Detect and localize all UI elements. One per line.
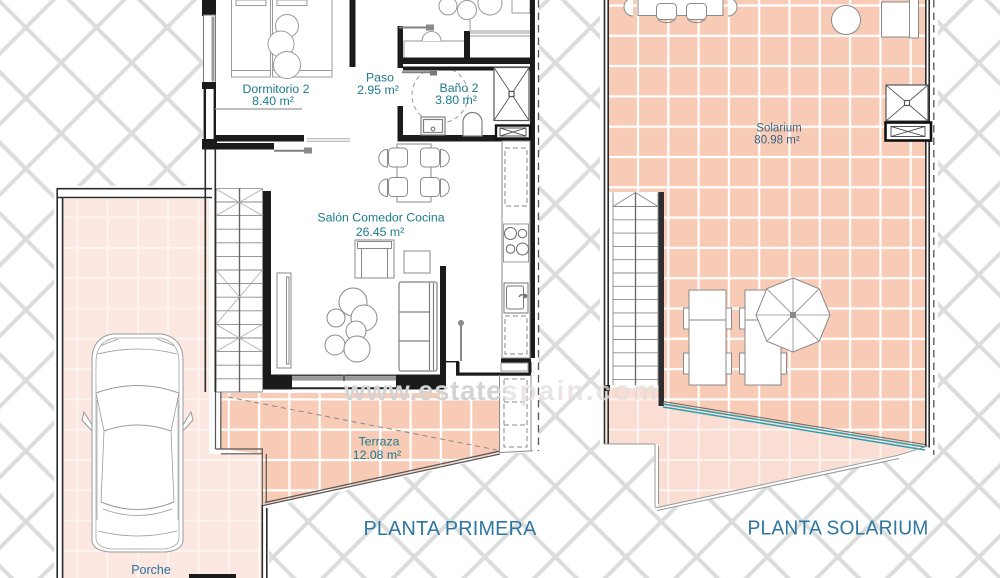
svg-text:2.95 m²: 2.95 m² (357, 83, 399, 97)
svg-text:8.40 m²: 8.40 m² (252, 94, 294, 108)
svg-text:80.98 m²: 80.98 m² (754, 135, 800, 147)
svg-text:3.80 m²: 3.80 m² (435, 93, 477, 107)
svg-text:www.estate: www.estate (343, 375, 502, 406)
svg-text:spain.com: spain.com (502, 375, 660, 406)
svg-text:Solarium: Solarium (756, 123, 801, 135)
svg-text:26.45 m²: 26.45 m² (356, 225, 405, 239)
svg-text:Salón Comedor Cocina: Salón Comedor Cocina (317, 211, 444, 225)
svg-text:Terraza: Terraza (358, 435, 399, 449)
svg-text:PLANTA PRIMERA: PLANTA PRIMERA (364, 518, 537, 540)
svg-text:Porche: Porche (131, 563, 171, 577)
svg-text:PLANTA SOLARIUM: PLANTA SOLARIUM (748, 518, 929, 540)
svg-text:12.08 m²: 12.08 m² (353, 448, 402, 462)
